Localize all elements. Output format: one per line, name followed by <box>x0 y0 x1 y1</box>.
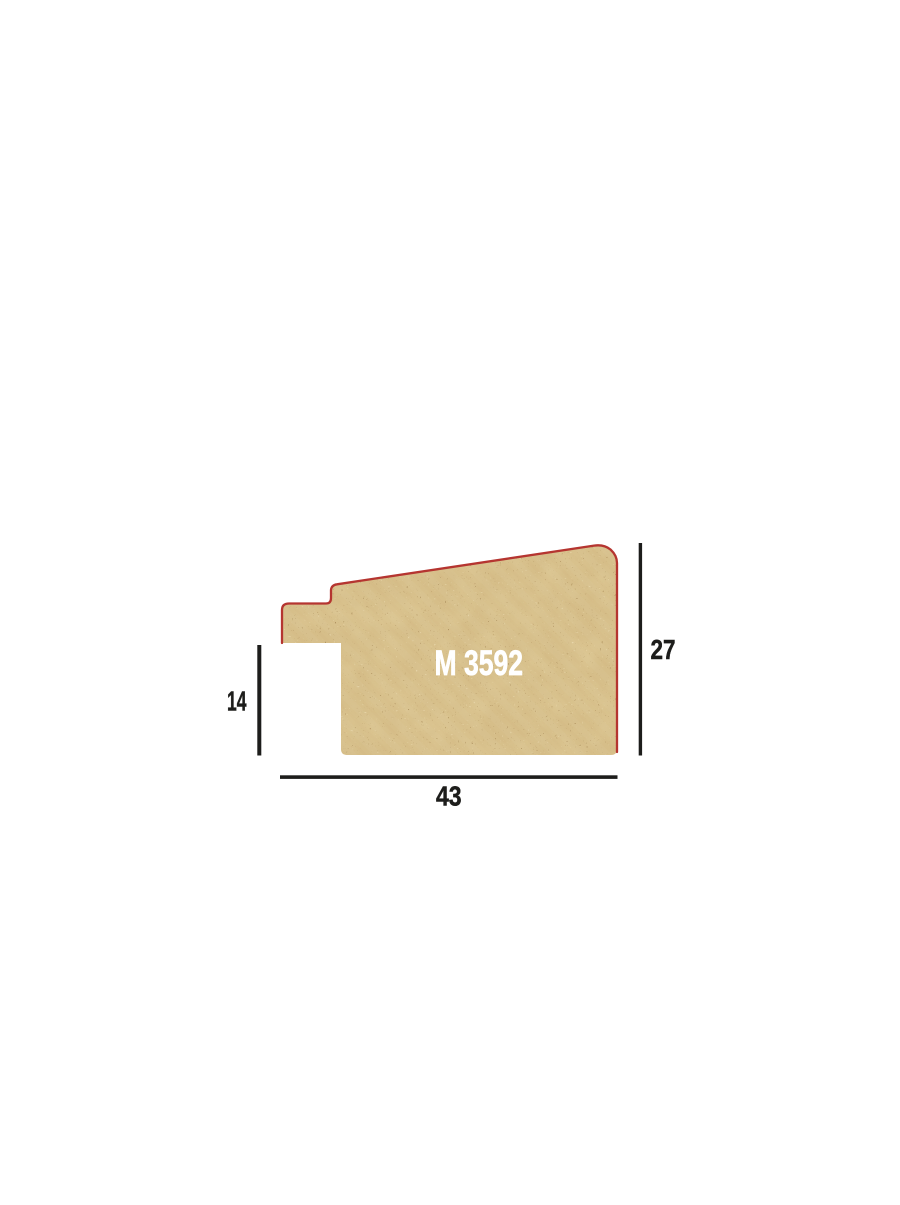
svg-text:27: 27 <box>651 634 676 665</box>
svg-text:43: 43 <box>436 781 462 812</box>
svg-text:14: 14 <box>227 686 247 717</box>
svg-text:M 3592: M 3592 <box>435 643 524 683</box>
